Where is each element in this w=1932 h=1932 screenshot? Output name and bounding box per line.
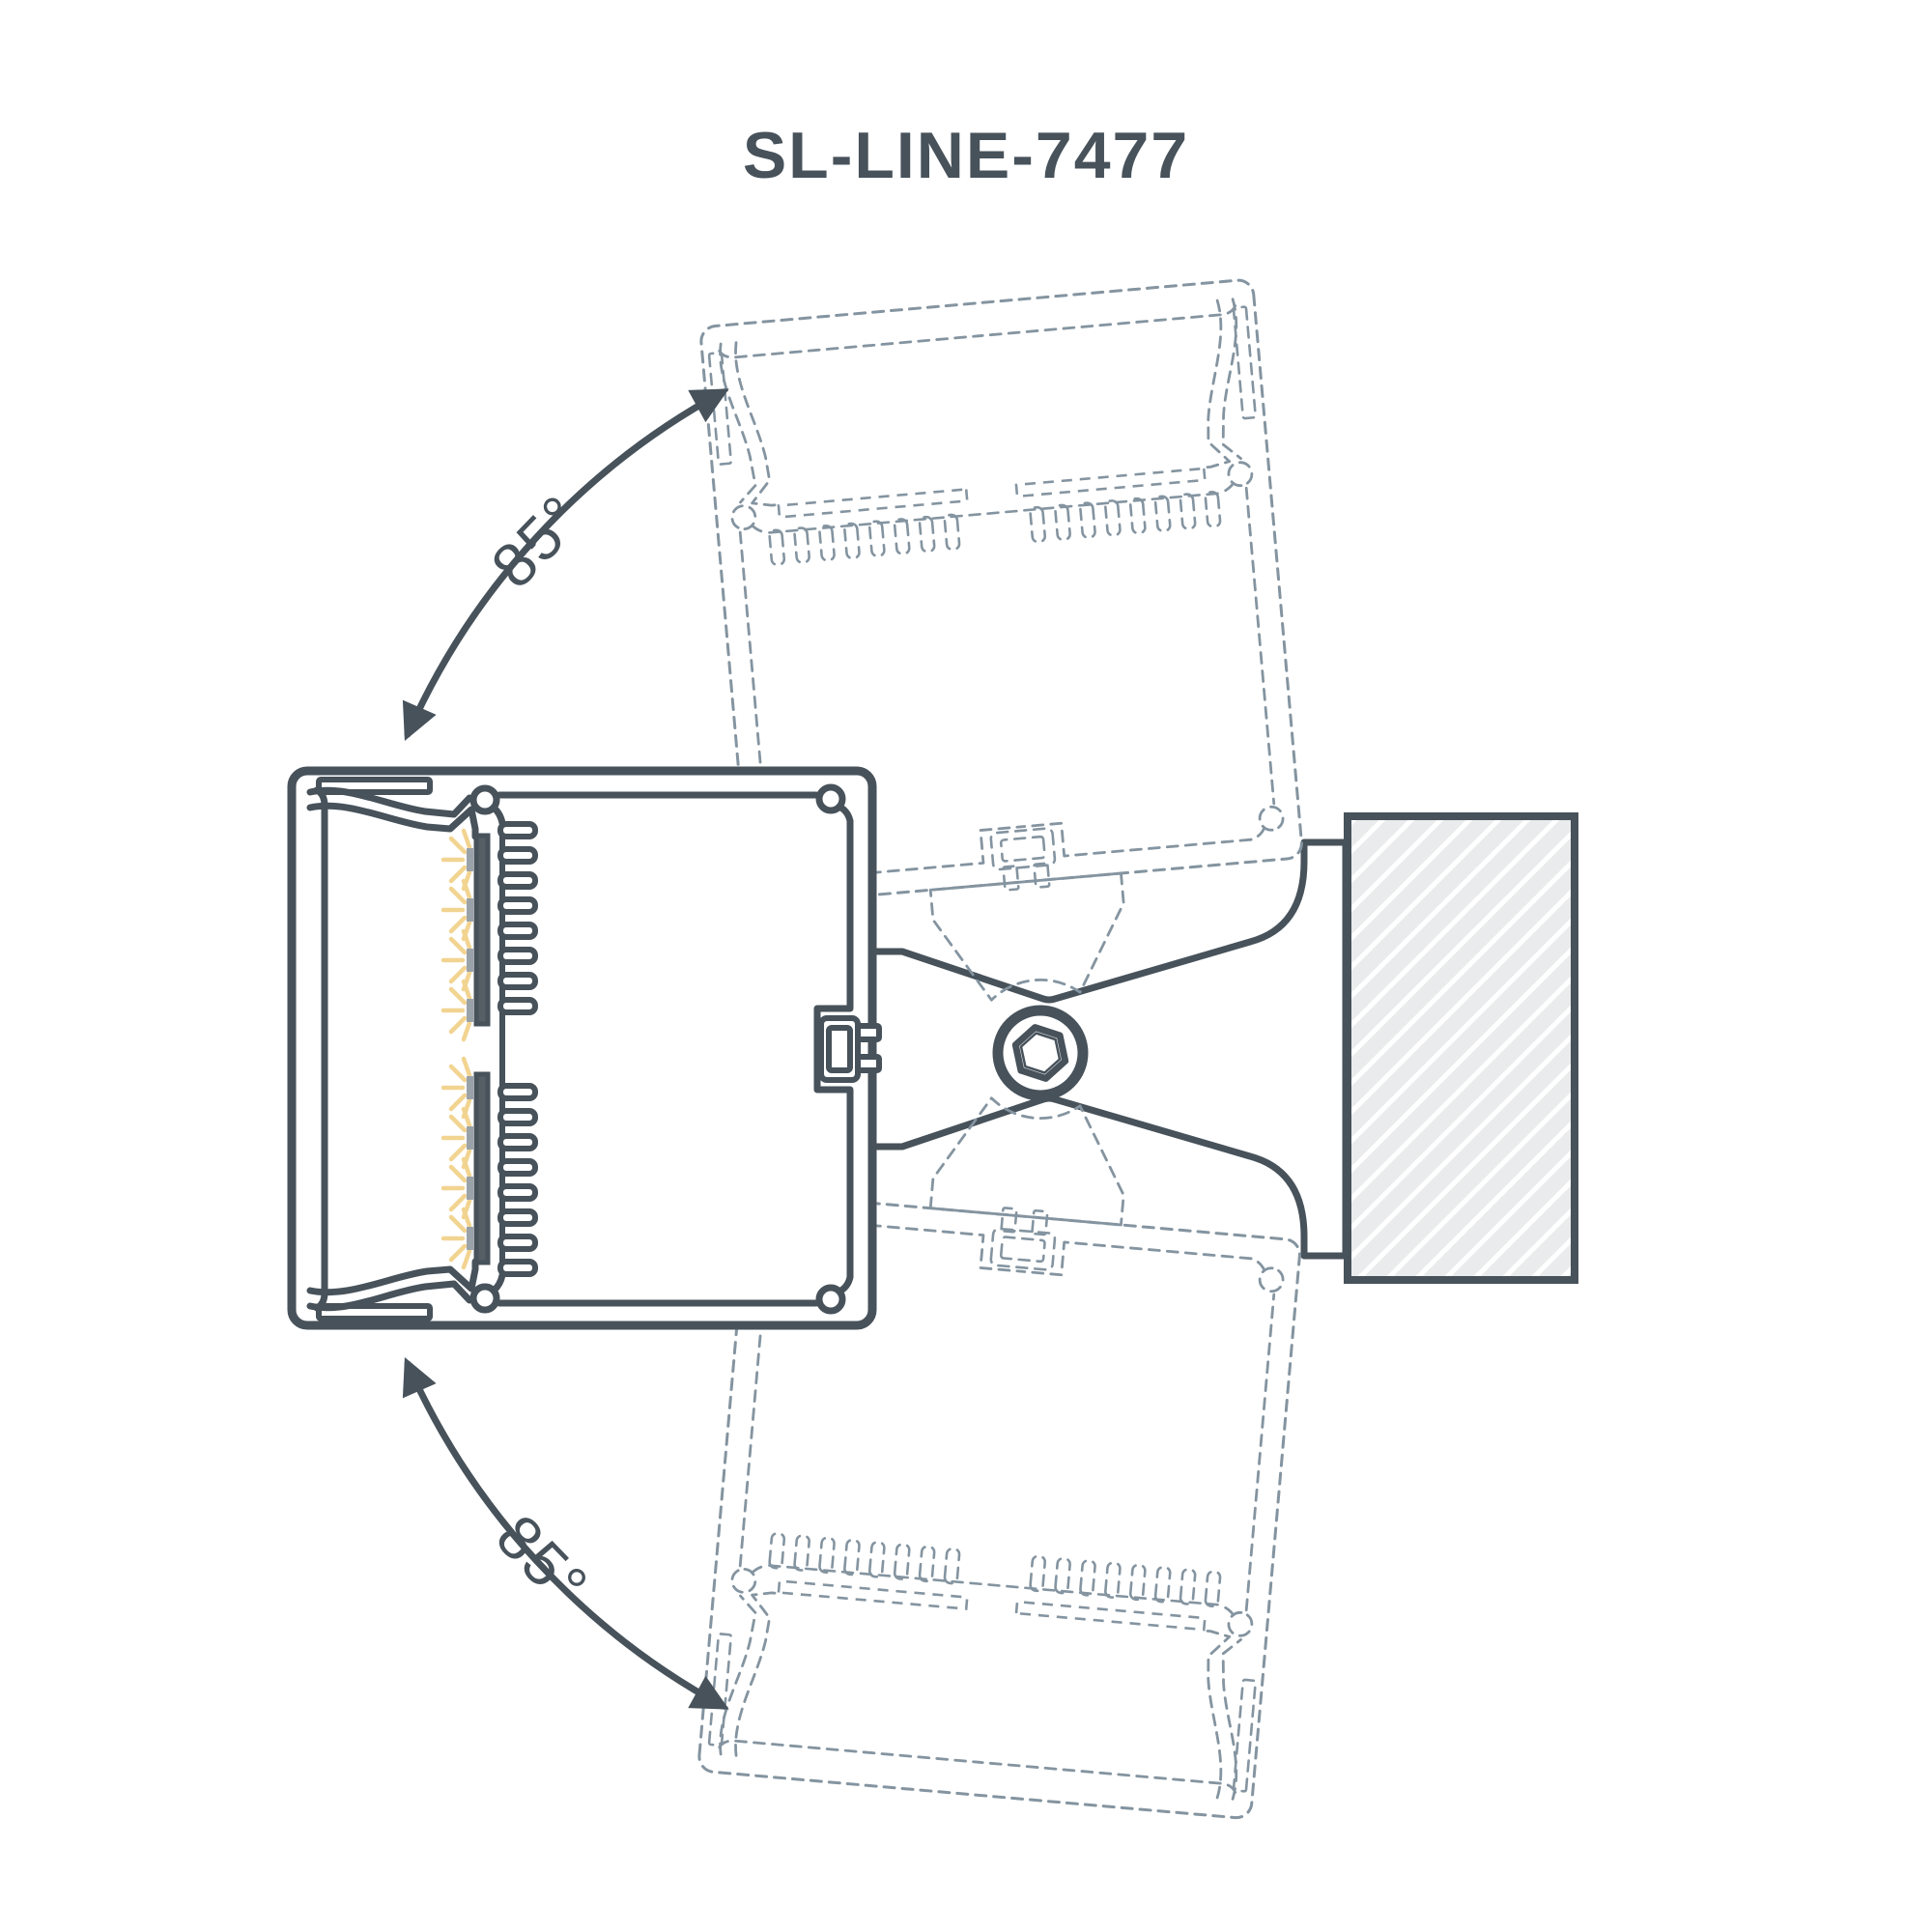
diagram-page: SL-LINE-7477 xyxy=(0,0,1932,1932)
diagram-canvas: 85° 85° xyxy=(0,0,1932,1932)
rotation-arrow-up xyxy=(408,392,723,734)
wall-mount-block xyxy=(1348,816,1575,1280)
luminaire-cross-section xyxy=(292,771,879,1325)
